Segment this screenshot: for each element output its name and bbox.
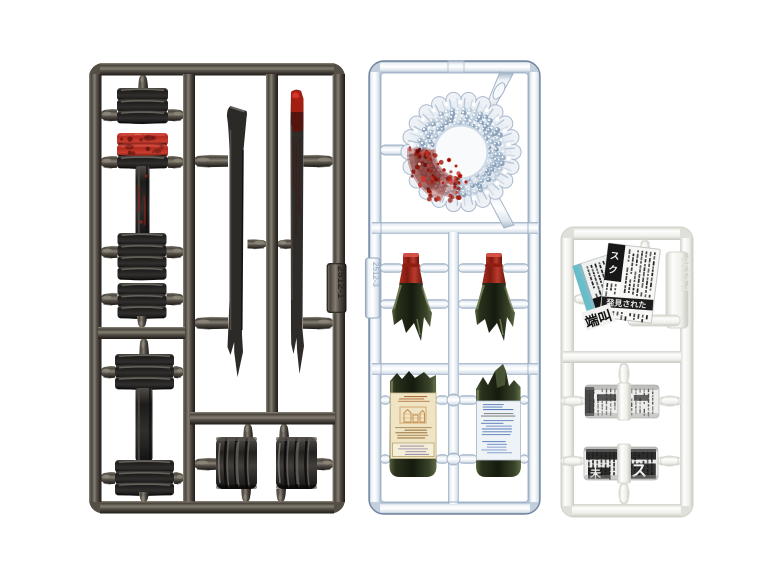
svg-text:2512-2: 2512-2: [678, 257, 690, 291]
svg-text:ス: ス: [609, 251, 620, 263]
svg-text:2512-3: 2512-3: [371, 262, 380, 287]
svg-text:2512-1: 2512-1: [335, 266, 347, 299]
svg-text:ク: ク: [608, 264, 619, 276]
